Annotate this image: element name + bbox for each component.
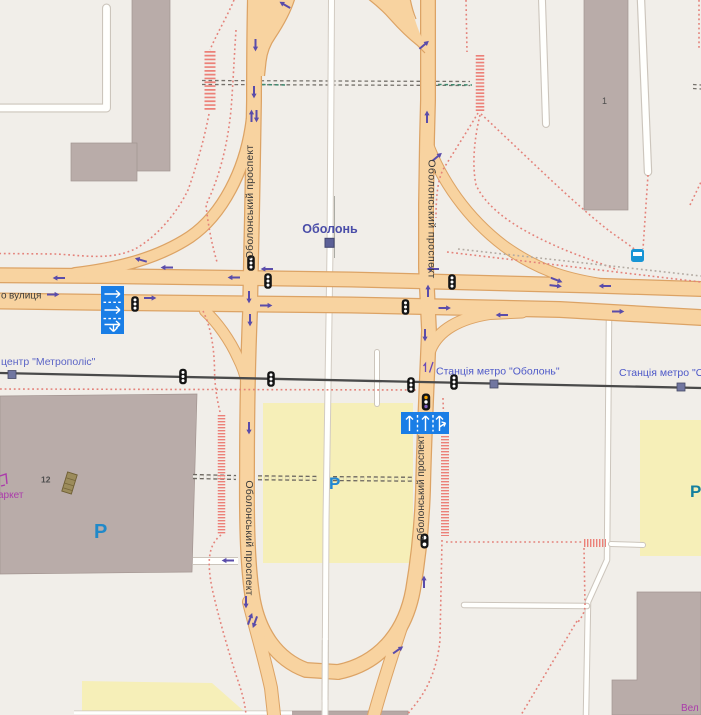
svg-text:о: о [1, 291, 7, 302]
svg-text:1: 1 [602, 96, 607, 106]
svg-text:вулиця: вулиця [9, 291, 41, 302]
svg-text:12: 12 [41, 475, 51, 485]
svg-text:Станція метро "Оболонь": Станція метро "Оболонь" [619, 367, 701, 379]
svg-text:Р: Р [690, 482, 701, 501]
svg-text:Станція метро "Оболонь": Станція метро "Оболонь" [436, 366, 560, 378]
svg-text:Оболонь: Оболонь [302, 222, 358, 236]
svg-text:Оболонський проспект: Оболонський проспект [244, 145, 256, 259]
svg-text:Вел: Вел [681, 703, 699, 714]
svg-text:P: P [329, 474, 340, 493]
svg-text:Оболонський проспект: Оболонський проспект [426, 159, 438, 278]
svg-text:центр "Метрополіс": центр "Метрополіс" [1, 356, 96, 368]
svg-text:Оболонський проспект: Оболонський проспект [243, 480, 255, 595]
svg-text:аркет: аркет [0, 490, 24, 501]
svg-text:P: P [94, 521, 107, 543]
svg-text:Оболонський проспект: Оболонський проспект [415, 435, 427, 541]
